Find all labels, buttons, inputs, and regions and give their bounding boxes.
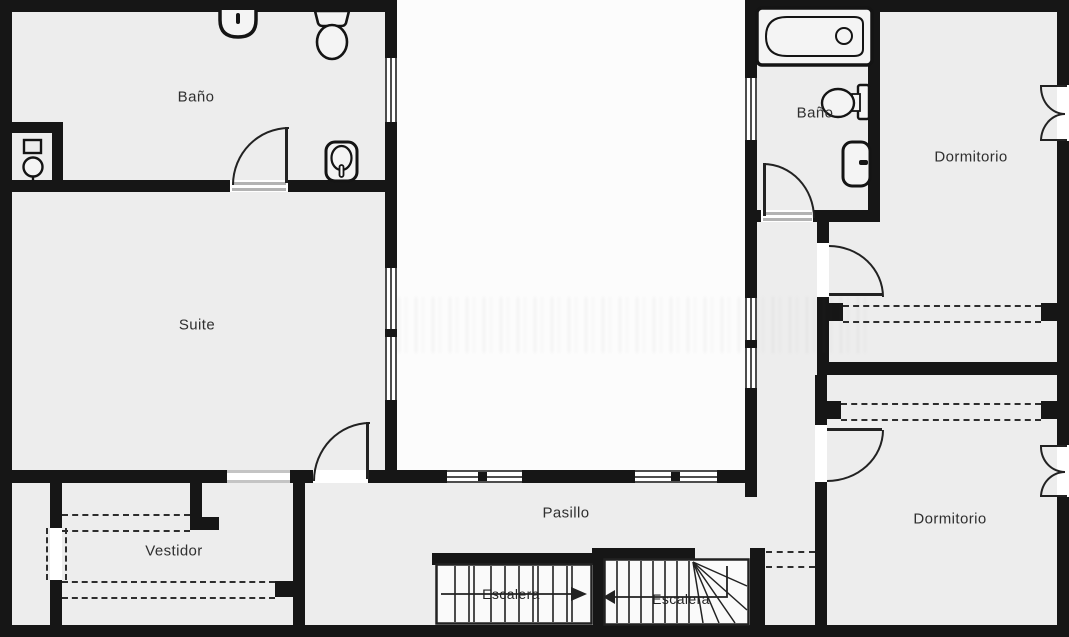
wall	[0, 0, 12, 637]
floor-plan: Baño Suite Vestidor Pasillo Escalera Esc…	[0, 0, 1069, 637]
room-label-bano-right: Baño	[797, 106, 834, 121]
casement-leaf	[1040, 139, 1067, 141]
wardrobe-end-cap	[1041, 401, 1059, 419]
door-leaf	[763, 163, 766, 216]
shower-icon	[22, 138, 44, 156]
wall	[817, 362, 1069, 375]
window-icon	[745, 78, 757, 140]
door-leaf	[829, 293, 882, 296]
door-opening	[817, 243, 829, 297]
wall	[815, 375, 827, 625]
wall	[745, 0, 757, 497]
window-icon	[385, 58, 397, 122]
window-post	[478, 472, 487, 481]
sink-icon	[215, 10, 261, 41]
bidet-icon	[324, 140, 360, 183]
room-label-dormitorio-top: Dormitorio	[934, 150, 1007, 165]
wardrobe-dashed-icon	[62, 581, 275, 599]
wall	[190, 483, 202, 517]
toilet-icon	[310, 10, 354, 62]
wardrobe-dashed-icon	[766, 551, 815, 568]
wall	[190, 517, 219, 530]
window-post	[745, 340, 757, 348]
bathtub-icon	[755, 6, 875, 68]
door-leaf	[366, 422, 369, 479]
watermark	[398, 297, 866, 353]
door-leaf	[827, 428, 882, 431]
door-opening	[815, 425, 827, 482]
wardrobe-end-cap	[275, 581, 295, 597]
room-label-suite: Suite	[179, 318, 215, 333]
shower-wall	[52, 122, 63, 183]
room-label-dormitorio-bottom: Dormitorio	[913, 512, 986, 527]
wardrobe-end-cap	[827, 401, 841, 419]
room-label-bano-left: Baño	[178, 90, 215, 105]
wall	[0, 625, 1069, 637]
wall	[293, 470, 305, 637]
window-post	[671, 472, 680, 481]
room-label-vestidor: Vestidor	[145, 544, 202, 559]
room-label-escalera-left: Escalera	[482, 587, 540, 601]
door-leaf	[285, 127, 288, 183]
wardrobe-dashed-icon	[62, 514, 190, 532]
wardrobe-dashed-icon	[841, 403, 1041, 421]
casement-leaf	[1040, 495, 1067, 497]
sliding-door-icon	[227, 470, 290, 483]
window-post	[385, 329, 397, 337]
stair-wall	[750, 548, 765, 630]
room-label-escalera-right: Escalera	[652, 592, 710, 606]
shower-drain-icon	[20, 155, 46, 182]
wardrobe-dashed-icon	[843, 305, 1041, 323]
room-label-pasillo: Pasillo	[543, 506, 590, 521]
sink-icon	[841, 140, 873, 188]
room-floor-bano-left-suite	[12, 12, 385, 470]
wardrobe-opening	[50, 528, 62, 580]
wardrobe-end-cap	[1041, 303, 1059, 321]
